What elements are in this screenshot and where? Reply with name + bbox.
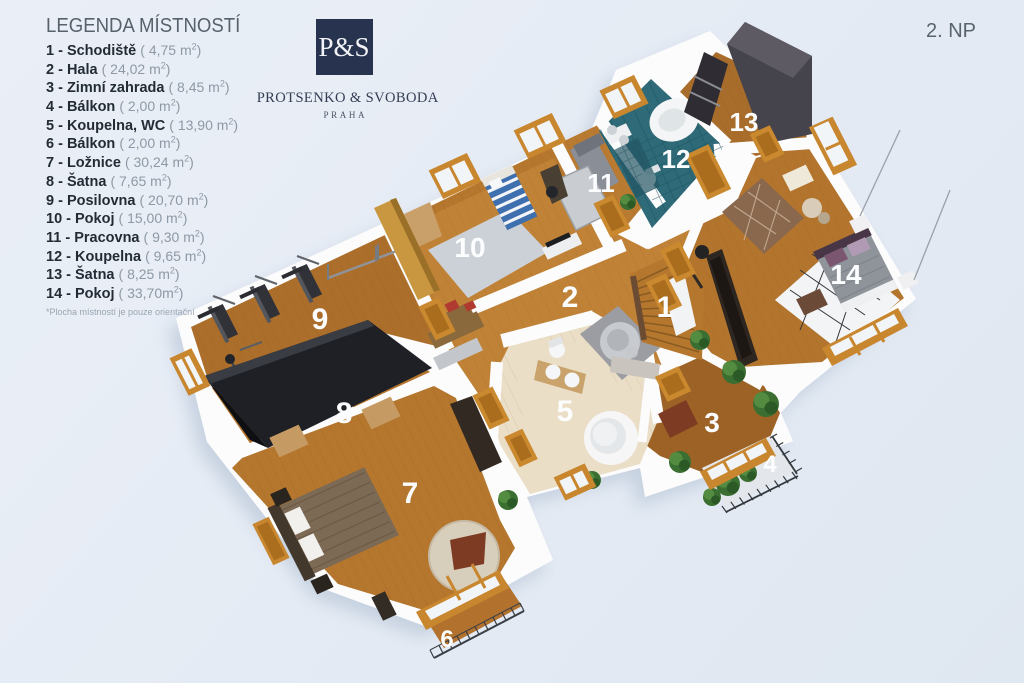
svg-text:10: 10	[454, 232, 485, 263]
svg-text:1: 1	[657, 291, 674, 324]
svg-text:13: 13	[730, 107, 759, 137]
svg-text:11: 11	[587, 168, 615, 198]
svg-text:12: 12	[662, 144, 691, 174]
svg-text:6: 6	[440, 626, 453, 653]
svg-text:14: 14	[830, 259, 862, 290]
svg-text:2: 2	[562, 281, 579, 314]
svg-text:4: 4	[763, 451, 777, 478]
svg-text:7: 7	[402, 477, 419, 510]
svg-text:8: 8	[336, 397, 353, 430]
svg-text:9: 9	[312, 303, 329, 336]
svg-text:5: 5	[557, 395, 574, 428]
svg-text:3: 3	[704, 407, 720, 438]
